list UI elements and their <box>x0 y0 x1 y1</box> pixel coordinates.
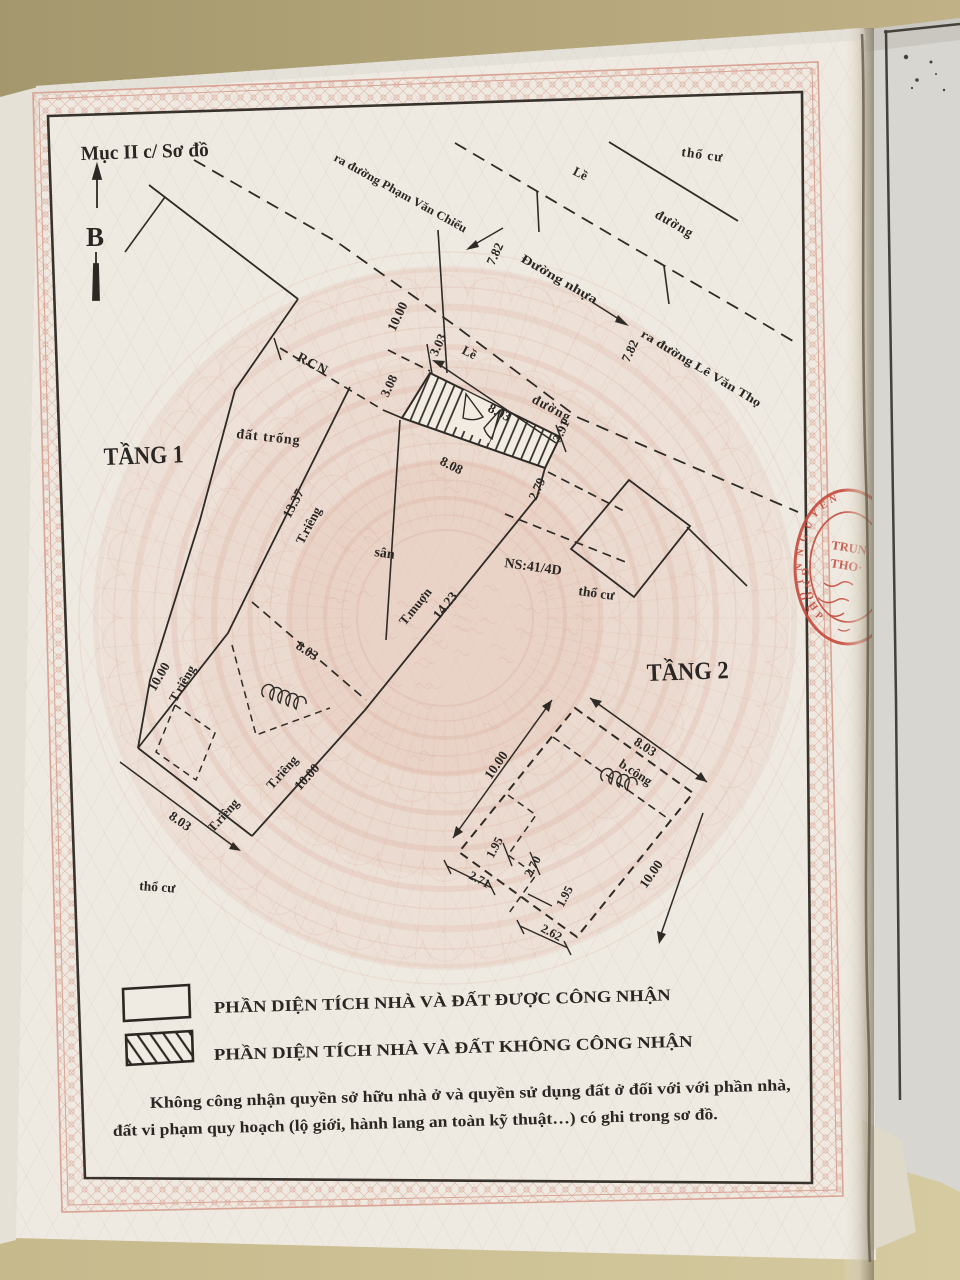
svg-text:sân: sân <box>373 545 395 563</box>
svg-text:B: B <box>86 222 104 252</box>
svg-text:TẦNG 1: TẦNG 1 <box>103 439 184 471</box>
svg-text:Mục II c/ Sơ đồ: Mục II c/ Sơ đồ <box>80 139 209 165</box>
svg-text:TẦNG 2: TẦNG 2 <box>646 655 729 687</box>
svg-text:thổ cư: thổ cư <box>139 878 177 896</box>
svg-text:G: G <box>799 568 811 577</box>
